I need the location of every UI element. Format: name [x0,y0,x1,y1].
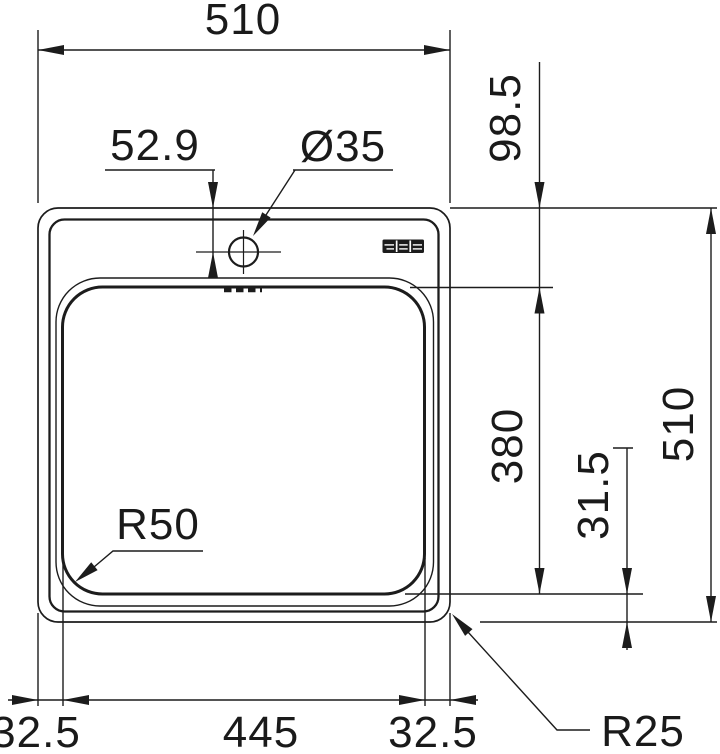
arrow-left-icon [63,695,89,705]
dim-label-bottom-left-margin: 32.5 [0,711,81,754]
leader-tap-hole-diameter [253,170,393,236]
dim-bottom-margins [8,558,478,706]
arrow-right-icon [424,45,450,55]
faucet-hole [196,230,281,274]
dim-label-overall-width: 510 [205,0,281,42]
dim-label-deck-depth: 98.5 [484,73,528,163]
arrow-left-icon [38,45,64,55]
arrow-right-icon [399,695,425,705]
dim-label-bowl-edge-gap: 31.5 [572,450,616,540]
dim-label-overall-depth: 510 [657,386,701,462]
dim-label-tap-hole-diameter: Ø35 [300,125,386,169]
radius-label-bowl-corner: R50 [116,503,200,547]
sink-drawing-svg [0,0,720,754]
dim-label-bottom-right-margin: 32.5 [388,711,478,754]
leader-arrow-icon [253,212,271,236]
arrow-down-icon [706,596,716,622]
dim-label-bowl-length: 380 [486,408,530,484]
arrow-down-icon [208,182,218,208]
technical-drawing: 510 52.9 Ø35 98.5 380 510 31.5 R50 32.5 … [0,0,720,754]
arrow-up-icon [535,288,545,314]
arrow-down-icon [535,182,545,208]
dim-overall-width-top [38,30,450,203]
dim-label-tap-hole-offset: 52.9 [110,124,200,168]
radius-label-outer-corner: R25 [601,710,685,754]
arrow-up-icon [622,622,632,648]
dim-overall-depth-right [706,208,716,622]
arrow-down-icon [622,568,632,594]
dim-label-bowl-width: 445 [223,711,299,754]
dim-tap-hole-offset [105,170,218,278]
bowl-outer-edge [56,278,434,606]
dim-deck-depth-and-bowl-length [535,62,545,594]
arrow-left-icon [450,695,476,705]
arrow-right-icon [12,695,38,705]
leader-arrow-icon [75,562,98,582]
leader-bowl-corner-radius [75,551,203,582]
arrow-up-icon [208,252,218,278]
bowl-outline [56,278,434,606]
arrow-up-icon [706,208,716,234]
arrow-down-icon [535,568,545,594]
brand-logo-icon [383,240,425,254]
